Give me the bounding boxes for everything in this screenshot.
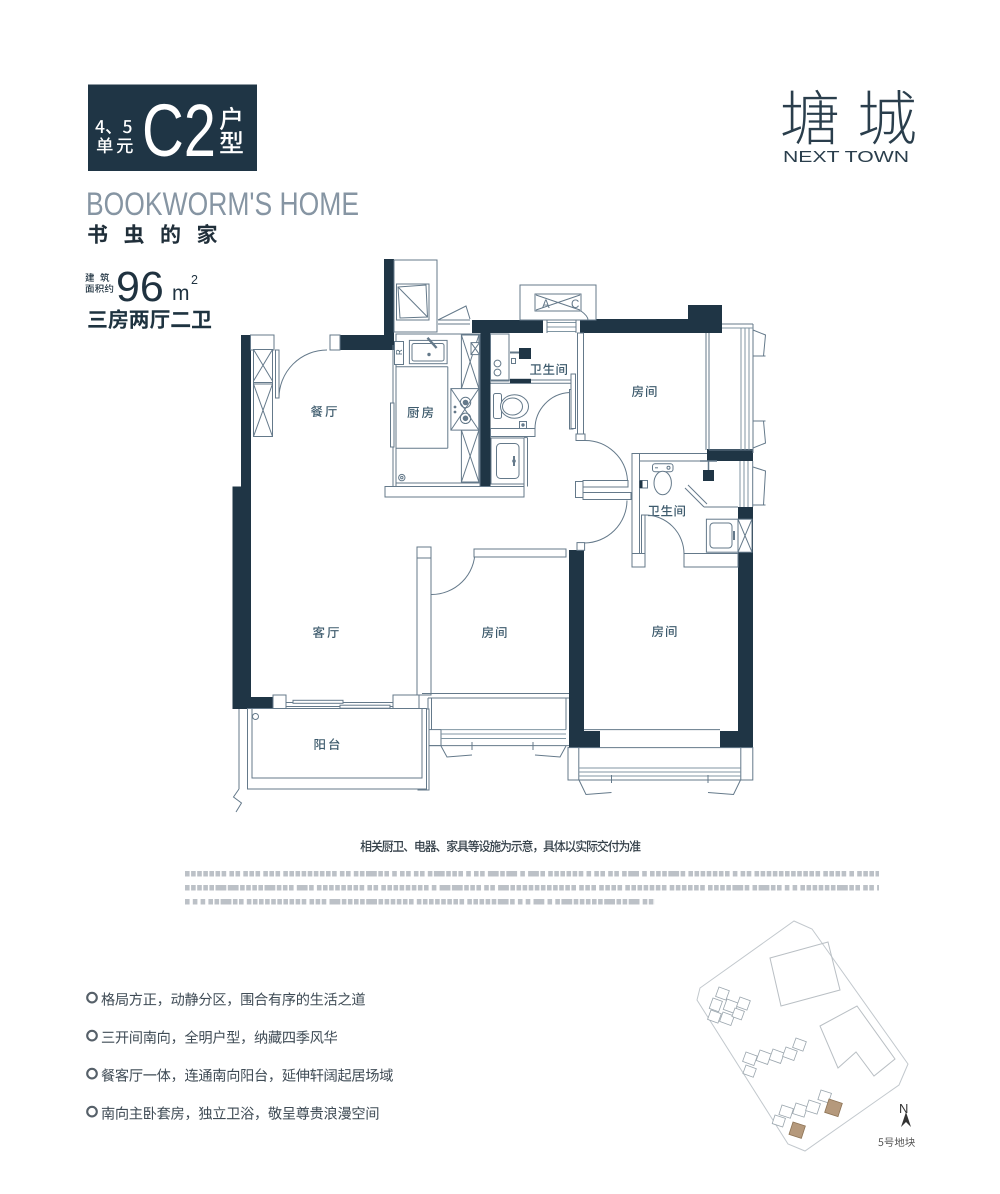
svg-text:BOOKWORM'S HOME: BOOKWORM'S HOME — [86, 186, 359, 222]
svg-text:2: 2 — [191, 273, 198, 287]
svg-text:m: m — [172, 282, 190, 305]
svg-text:C2: C2 — [142, 89, 216, 172]
svg-text:C: C — [571, 299, 579, 311]
svg-text:96: 96 — [116, 263, 164, 311]
svg-text:R: R — [395, 349, 404, 355]
svg-text:NEXT TOWN: NEXT TOWN — [783, 149, 909, 166]
svg-text:N: N — [899, 1101, 908, 1116]
svg-text:A: A — [542, 299, 550, 311]
